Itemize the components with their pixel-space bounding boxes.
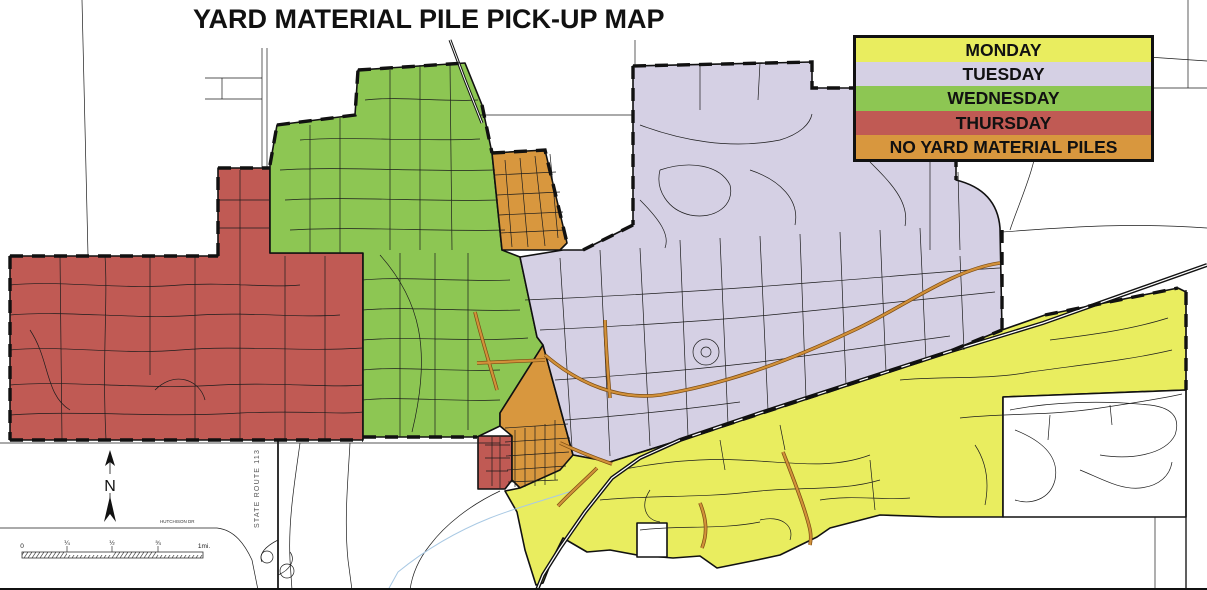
ramp-loop-west xyxy=(261,551,273,563)
north-arrow: N xyxy=(104,450,116,522)
legend-item-tuesday: TUESDAY xyxy=(856,62,1151,86)
north-arrow-letter: N xyxy=(104,478,116,495)
legend-item-no-piles: NO YARD MATERIAL PILES xyxy=(856,135,1151,159)
scale-label-half: ½ xyxy=(109,539,115,547)
scale-bar: 0 ¼ ½ ¾ 1mi. xyxy=(20,539,210,558)
legend-item-wednesday: WEDNESDAY xyxy=(856,86,1151,110)
highway-ramps xyxy=(261,540,292,575)
scale-bar-q4 xyxy=(158,555,203,558)
hutchison-dr-label: HUTCHISON DR xyxy=(160,519,195,524)
scale-bar-q1 xyxy=(22,552,67,558)
zone-thursday-downtown-block xyxy=(478,436,512,489)
scale-bar-q3 xyxy=(112,552,158,558)
scale-label-threequarter: ¾ xyxy=(155,540,161,547)
page-title: YARD MATERIAL PILE PICK-UP MAP xyxy=(193,4,663,35)
scale-bar-q2 xyxy=(67,555,112,558)
scale-label-quarter: ¼ xyxy=(64,540,70,547)
north-arrow-bottom xyxy=(104,496,116,522)
scale-label-0: 0 xyxy=(20,543,24,550)
legend-item-thursday: THURSDAY xyxy=(856,111,1151,135)
state-route-113-label: STATE ROUTE 113 xyxy=(254,449,261,528)
ramp-loop-east xyxy=(280,564,294,578)
yard-pickup-map-page: N 0 ¼ ½ ¾ 1mi. STATE ROUTE 113 HUTCHISON… xyxy=(0,0,1207,590)
scale-label-1mi: 1mi. xyxy=(198,543,210,550)
zone-no-piles-north xyxy=(492,150,567,250)
legend: MONDAY TUESDAY WEDNESDAY THURSDAY NO YAR… xyxy=(853,35,1154,162)
legend-item-monday: MONDAY xyxy=(856,38,1151,62)
